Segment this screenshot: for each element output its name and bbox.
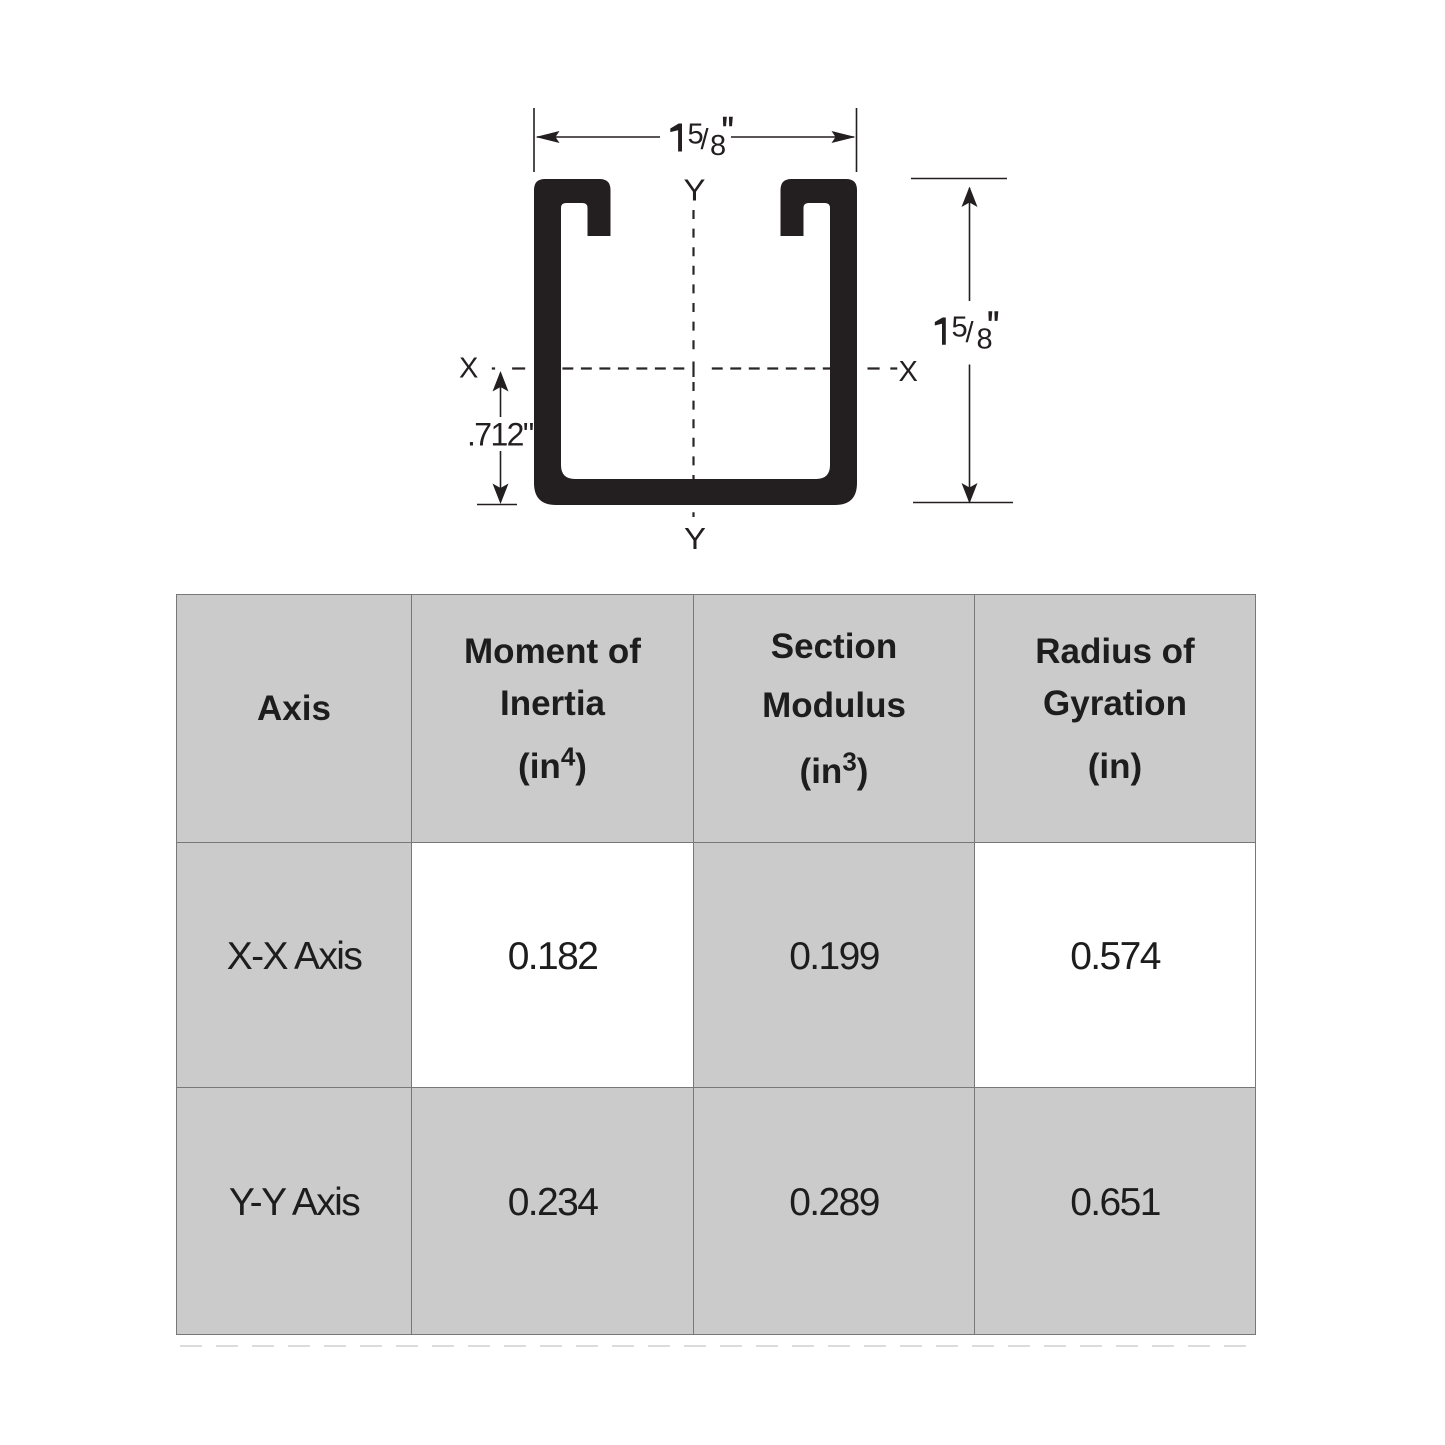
svg-text:X: X: [459, 353, 478, 385]
svg-text:.712": .712": [467, 417, 533, 453]
svg-text:Y: Y: [684, 173, 706, 208]
svg-text:X: X: [899, 356, 918, 388]
svg-text:/: /: [966, 317, 975, 349]
svg-text:8: 8: [710, 130, 726, 162]
svg-text:8: 8: [977, 324, 993, 356]
svg-text:/: /: [701, 124, 710, 156]
svg-text:Y: Y: [684, 521, 706, 556]
